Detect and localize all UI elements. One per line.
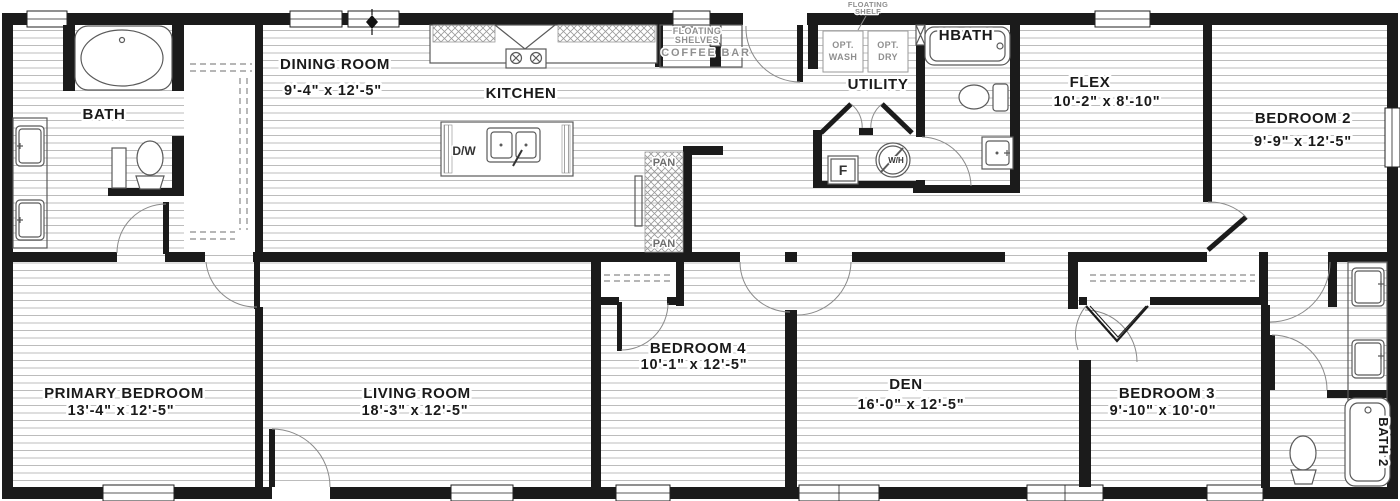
floorplan-svg: BATH DINING ROOM 9'-4" x 12'-5" KITCHEN … [0,0,1400,501]
floating-shelves-label-2: SHELVES [675,35,719,45]
bath-label: BATH [83,106,126,123]
flex-dims: 10'-2" x 8'-10" [1054,94,1161,110]
bedroom2-label: BEDROOM 2 [1255,110,1351,127]
opt-wash-label-2: WASH [829,52,858,62]
opt-wash-label-1: OPT. [832,40,854,50]
toilet-icon [1290,436,1316,484]
window [1385,108,1400,167]
hbath-label: HBATH [939,27,993,44]
bedroom3-dims: 9'-10" x 10'-0" [1110,403,1217,419]
utility-label: UTILITY [848,76,909,93]
primary-bedroom-label: PRIMARY BEDROOM [44,385,204,402]
window [290,11,342,27]
opt-dry-label-2: DRY [878,52,898,62]
window [103,485,174,501]
water-heater-label: W/H [888,156,904,165]
window [1207,485,1263,501]
bath2-label: BATH 2 [1376,417,1391,467]
pantry-label-bottom: PAN [653,238,675,250]
bedroom3-closet-floor [1078,262,1259,297]
primary-bedroom-dims: 13'-4" x 12'-5" [68,403,175,419]
coffee-bar-label: COFFEE BAR [661,47,751,59]
window [799,485,879,501]
sink-icon [982,137,1013,169]
pantry-label-top: PAN [653,157,675,169]
living-room-dims: 18'-3" x 12'-5" [362,403,469,419]
bedroom2-dims: 9'-9" x 12'-5" [1254,134,1352,150]
dishwasher-label: D/W [452,144,476,158]
furnace-label: F [839,162,848,178]
opt-dry-label-1: OPT. [877,40,899,50]
living-room-label: LIVING ROOM [363,385,470,402]
counter-hatch [433,25,495,42]
window [27,11,67,27]
window [1095,11,1150,27]
flex-label: FLEX [1070,74,1111,91]
window [451,485,513,501]
toilet-icon [959,84,1008,111]
window [616,485,670,501]
dining-room-dims: 9'-4" x 12'-5" [284,83,382,99]
bedroom4-closet-floor [601,262,676,297]
bedroom4-label: BEDROOM 4 [650,340,746,357]
primary-closet-floor [184,25,255,252]
dining-room-label: DINING ROOM [280,56,390,73]
counter-hatch [558,25,655,42]
window [1027,485,1103,501]
bedroom3-label: BEDROOM 3 [1119,385,1215,402]
bedroom4-dims: 10'-1" x 12'-5" [641,357,748,373]
floor-plan: BATH DINING ROOM 9'-4" x 12'-5" KITCHEN … [0,0,1400,501]
floating-shelf-label-2: SHELF [855,7,881,16]
sink-icon [487,128,540,166]
kitchen-label: KITCHEN [486,85,557,102]
garden-tub-icon [75,26,172,90]
den-dims: 16'-0" x 12'-5" [858,397,965,413]
den-label: DEN [889,376,922,393]
